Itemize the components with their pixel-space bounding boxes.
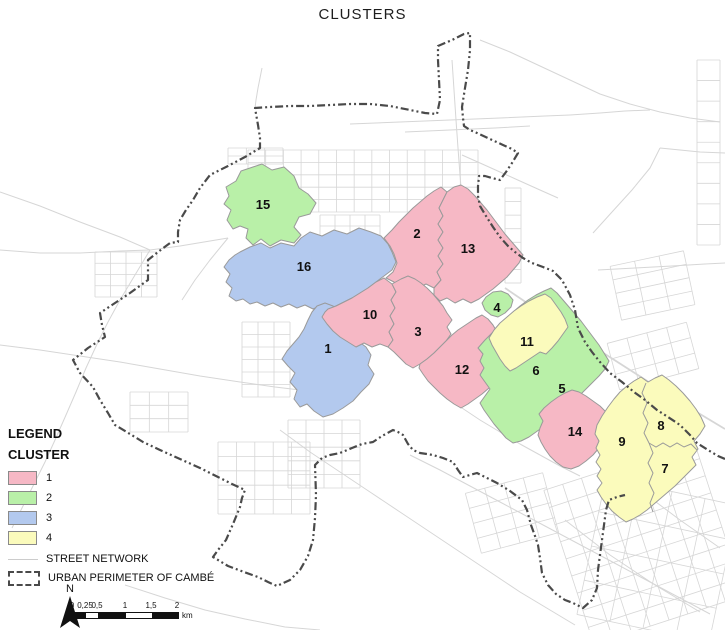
legend-item-1: 1 <box>8 468 223 488</box>
street-line <box>570 110 650 115</box>
street-line-swatch <box>8 559 38 560</box>
cluster-label-13: 13 <box>461 241 475 256</box>
street-grid <box>218 442 310 514</box>
street-line <box>593 148 660 233</box>
cluster-label-6: 6 <box>532 363 539 378</box>
street-line <box>0 345 300 390</box>
scale-bar-labels: 00,250,511,52 <box>66 601 186 610</box>
legend-perimeter-row: URBAN PERIMETER OF CAMBÉ <box>8 569 223 587</box>
legend-item-2: 2 <box>8 488 223 508</box>
scale-segment <box>152 613 178 618</box>
scale-tick-label: 2 <box>175 601 179 610</box>
street-line <box>255 68 262 108</box>
cluster-label-10: 10 <box>363 307 377 322</box>
street-network-label: STREET NETWORK <box>46 553 148 565</box>
legend-items: 1234 <box>8 468 223 548</box>
street-line <box>182 238 228 300</box>
street-line <box>0 238 228 253</box>
legend-title: LEGEND <box>8 426 223 441</box>
scale-tick-label: 0,5 <box>91 601 102 610</box>
street-line <box>462 155 558 198</box>
cluster-label-15: 15 <box>256 197 270 212</box>
cluster-label-11: 11 <box>520 334 534 349</box>
cluster-label-14: 14 <box>568 424 583 439</box>
urban-perimeter-label: URBAN PERIMETER OF CAMBÉ <box>48 572 214 584</box>
scale-segment <box>126 613 152 618</box>
scale-tick-label: 0 <box>70 601 74 610</box>
legend-swatch-2 <box>8 491 37 505</box>
street-line <box>350 115 570 124</box>
scale-tick-label: 0,25 <box>77 601 93 610</box>
legend-swatch-4 <box>8 531 37 545</box>
legend-item-label: 4 <box>46 532 52 544</box>
scale-bar-unit: km <box>182 611 193 620</box>
scale-tick-label: 1 <box>123 601 127 610</box>
street-grid <box>465 473 558 554</box>
legend-item-3: 3 <box>8 508 223 528</box>
legend-subtitle: CLUSTER <box>8 447 223 462</box>
cluster-label-4: 4 <box>493 300 501 315</box>
perimeter-swatch <box>8 571 40 586</box>
cluster-label-12: 12 <box>455 362 469 377</box>
street-line <box>0 192 150 250</box>
scale-segment <box>86 613 98 618</box>
cluster-label-16: 16 <box>297 259 311 274</box>
scale-segment <box>98 613 126 618</box>
cluster-label-5: 5 <box>558 381 565 396</box>
legend-street-row: STREET NETWORK <box>8 551 223 567</box>
cluster-label-3: 3 <box>414 324 421 339</box>
legend-swatch-1 <box>8 471 37 485</box>
cluster-label-2: 2 <box>413 226 420 241</box>
legend-swatch-3 <box>8 511 37 525</box>
street-line <box>480 40 720 122</box>
scale-bar: 00,250,511,52 km <box>66 601 206 625</box>
cluster-label-1: 1 <box>324 341 331 356</box>
legend-item-label: 1 <box>46 472 52 484</box>
legend-item-label: 2 <box>46 492 52 504</box>
street-grid <box>610 251 695 320</box>
legend-item-4: 4 <box>8 528 223 548</box>
street-line <box>660 148 725 153</box>
legend-item-label: 3 <box>46 512 52 524</box>
cluster-label-9: 9 <box>618 434 625 449</box>
cluster-label-8: 8 <box>657 418 664 433</box>
scale-segment <box>73 613 86 618</box>
scale-tick-label: 1,5 <box>145 601 156 610</box>
scale-bar-segments <box>72 612 179 619</box>
legend: LEGEND CLUSTER 1234 STREET NETWORK URBAN… <box>8 426 223 587</box>
map-figure: CLUSTERS 15161213103124511614987N LEGEND… <box>0 0 725 630</box>
cluster-label-7: 7 <box>661 461 668 476</box>
